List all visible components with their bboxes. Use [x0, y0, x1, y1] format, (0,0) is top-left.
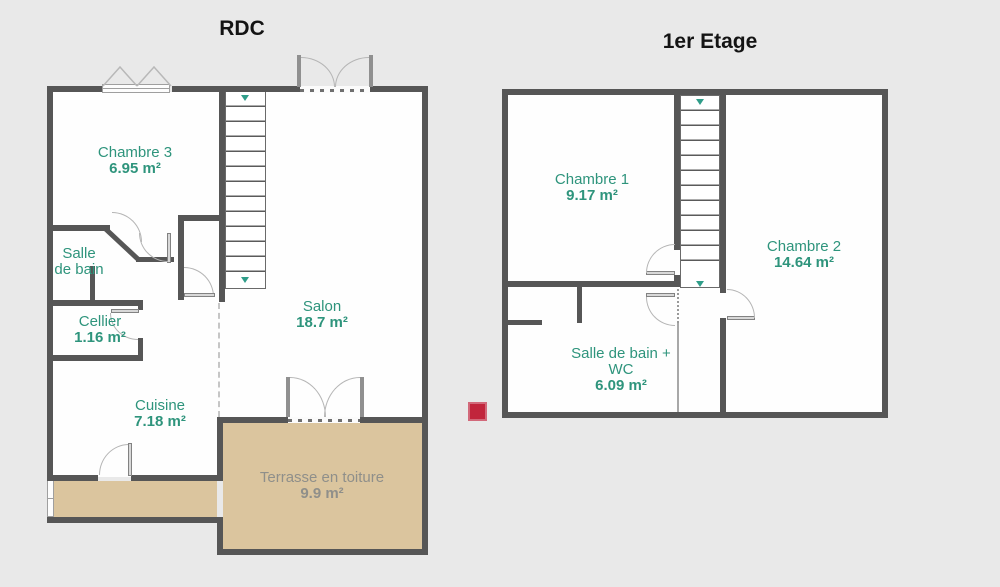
room-area: 7.18 m²: [105, 414, 215, 430]
room-label-cellier: Cellier 1.16 m²: [55, 314, 145, 346]
room-name: Cuisine: [105, 398, 215, 414]
wall-right-etage1: [882, 89, 888, 418]
window-casement-icon: [102, 65, 172, 87]
room-name: Chambre 3: [80, 145, 190, 161]
room-area: 1.16 m²: [55, 330, 145, 346]
partition-thin: [677, 323, 679, 412]
door-leaf: [128, 443, 132, 476]
door-post: [360, 377, 364, 417]
wall-segment: [47, 475, 98, 481]
room-label-salle-de-bain: Salle de bain: [54, 246, 104, 278]
floor-plan-canvas: RDC: [0, 0, 1000, 587]
staircase-treads: [226, 92, 265, 277]
room-name: Chambre 2: [744, 239, 864, 255]
room-area: 9.9 m²: [237, 486, 407, 502]
stair-arrow-icon: [241, 277, 249, 283]
wall-segment: [217, 417, 288, 423]
stair-arrow-icon: [696, 99, 704, 105]
terrace-wall-bottom-block: [217, 549, 428, 555]
door-leaf: [184, 293, 215, 297]
room-name: Chambre 1: [537, 172, 647, 188]
wall-segment: [360, 417, 428, 423]
rdc-open-boundary-dashed: [218, 303, 220, 417]
wall-segment: [131, 475, 223, 481]
wall-right-rdc: [422, 86, 428, 423]
room-label-chambre3: Chambre 3 6.95 m²: [80, 145, 190, 177]
wall-bottom-etage1: [502, 412, 888, 418]
wall-left-etage1: [502, 89, 508, 418]
wall-segment: [217, 417, 223, 481]
partition-dotted: [677, 289, 679, 323]
room-area: 6.09 m²: [566, 378, 676, 394]
room-label-salle-de-bain-wc: Salle de bain + WC 6.09 m²: [566, 346, 676, 394]
door-threshold: [300, 86, 370, 93]
wall-closet-top: [178, 215, 225, 221]
stair-arrow-icon: [696, 281, 704, 287]
terrace-wall-bottom-strip: [47, 517, 217, 523]
red-square-marker: [468, 402, 487, 421]
staircase-etage1: [680, 95, 720, 288]
door-post: [369, 55, 373, 87]
wall-segment: [370, 86, 428, 92]
room-label-salon: Salon 18.7 m²: [267, 299, 377, 331]
room-area: 6.95 m²: [80, 161, 190, 177]
wall-segment: [47, 355, 143, 361]
room-label-terrasse: Terrasse en toiture 9.9 m²: [237, 470, 407, 502]
room-label-chambre2: Chambre 2 14.64 m²: [744, 239, 864, 271]
room-name: Salon: [267, 299, 377, 315]
wall-segment: [47, 86, 102, 92]
etage1-title: 1er Etage: [663, 30, 758, 54]
wall-stub: [502, 320, 542, 325]
wall-chambre1-bottom: [502, 281, 674, 287]
room-name: Salle de bain + WC: [566, 346, 676, 378]
double-door-arc: [301, 57, 335, 87]
wall-top-etage1: [502, 89, 888, 95]
staircase-treads: [681, 96, 719, 272]
double-door-arc: [335, 57, 369, 87]
wall-stair-left: [219, 89, 225, 302]
door-threshold: [288, 417, 360, 423]
wall-segment: [720, 318, 726, 412]
wall-segment: [47, 300, 143, 306]
rdc-title: RDC: [219, 17, 265, 41]
wall-stub: [674, 275, 680, 287]
wall-stair-right: [720, 92, 726, 293]
wall-left-rdc: [47, 86, 53, 481]
room-area: 14.64 m²: [744, 255, 864, 271]
room-area: 9.17 m²: [537, 188, 647, 204]
wall-stair-left: [674, 92, 680, 250]
room-label-chambre1: Chambre 1 9.17 m²: [537, 172, 647, 204]
room-label-cuisine: Cuisine 7.18 m²: [105, 398, 215, 430]
room-name: Cellier: [55, 314, 145, 330]
wall-segment: [172, 86, 300, 92]
wall-stub: [577, 287, 582, 323]
staircase-rdc: [225, 91, 266, 289]
terrace-wall-right: [422, 423, 428, 555]
terrace-strip: [53, 481, 217, 517]
room-area: 18.7 m²: [267, 315, 377, 331]
room-name: Terrasse en toiture: [237, 470, 407, 486]
terrace-window-icon: [47, 480, 54, 517]
room-name: Salle de bain: [54, 246, 104, 278]
stair-arrow-icon: [241, 95, 249, 101]
